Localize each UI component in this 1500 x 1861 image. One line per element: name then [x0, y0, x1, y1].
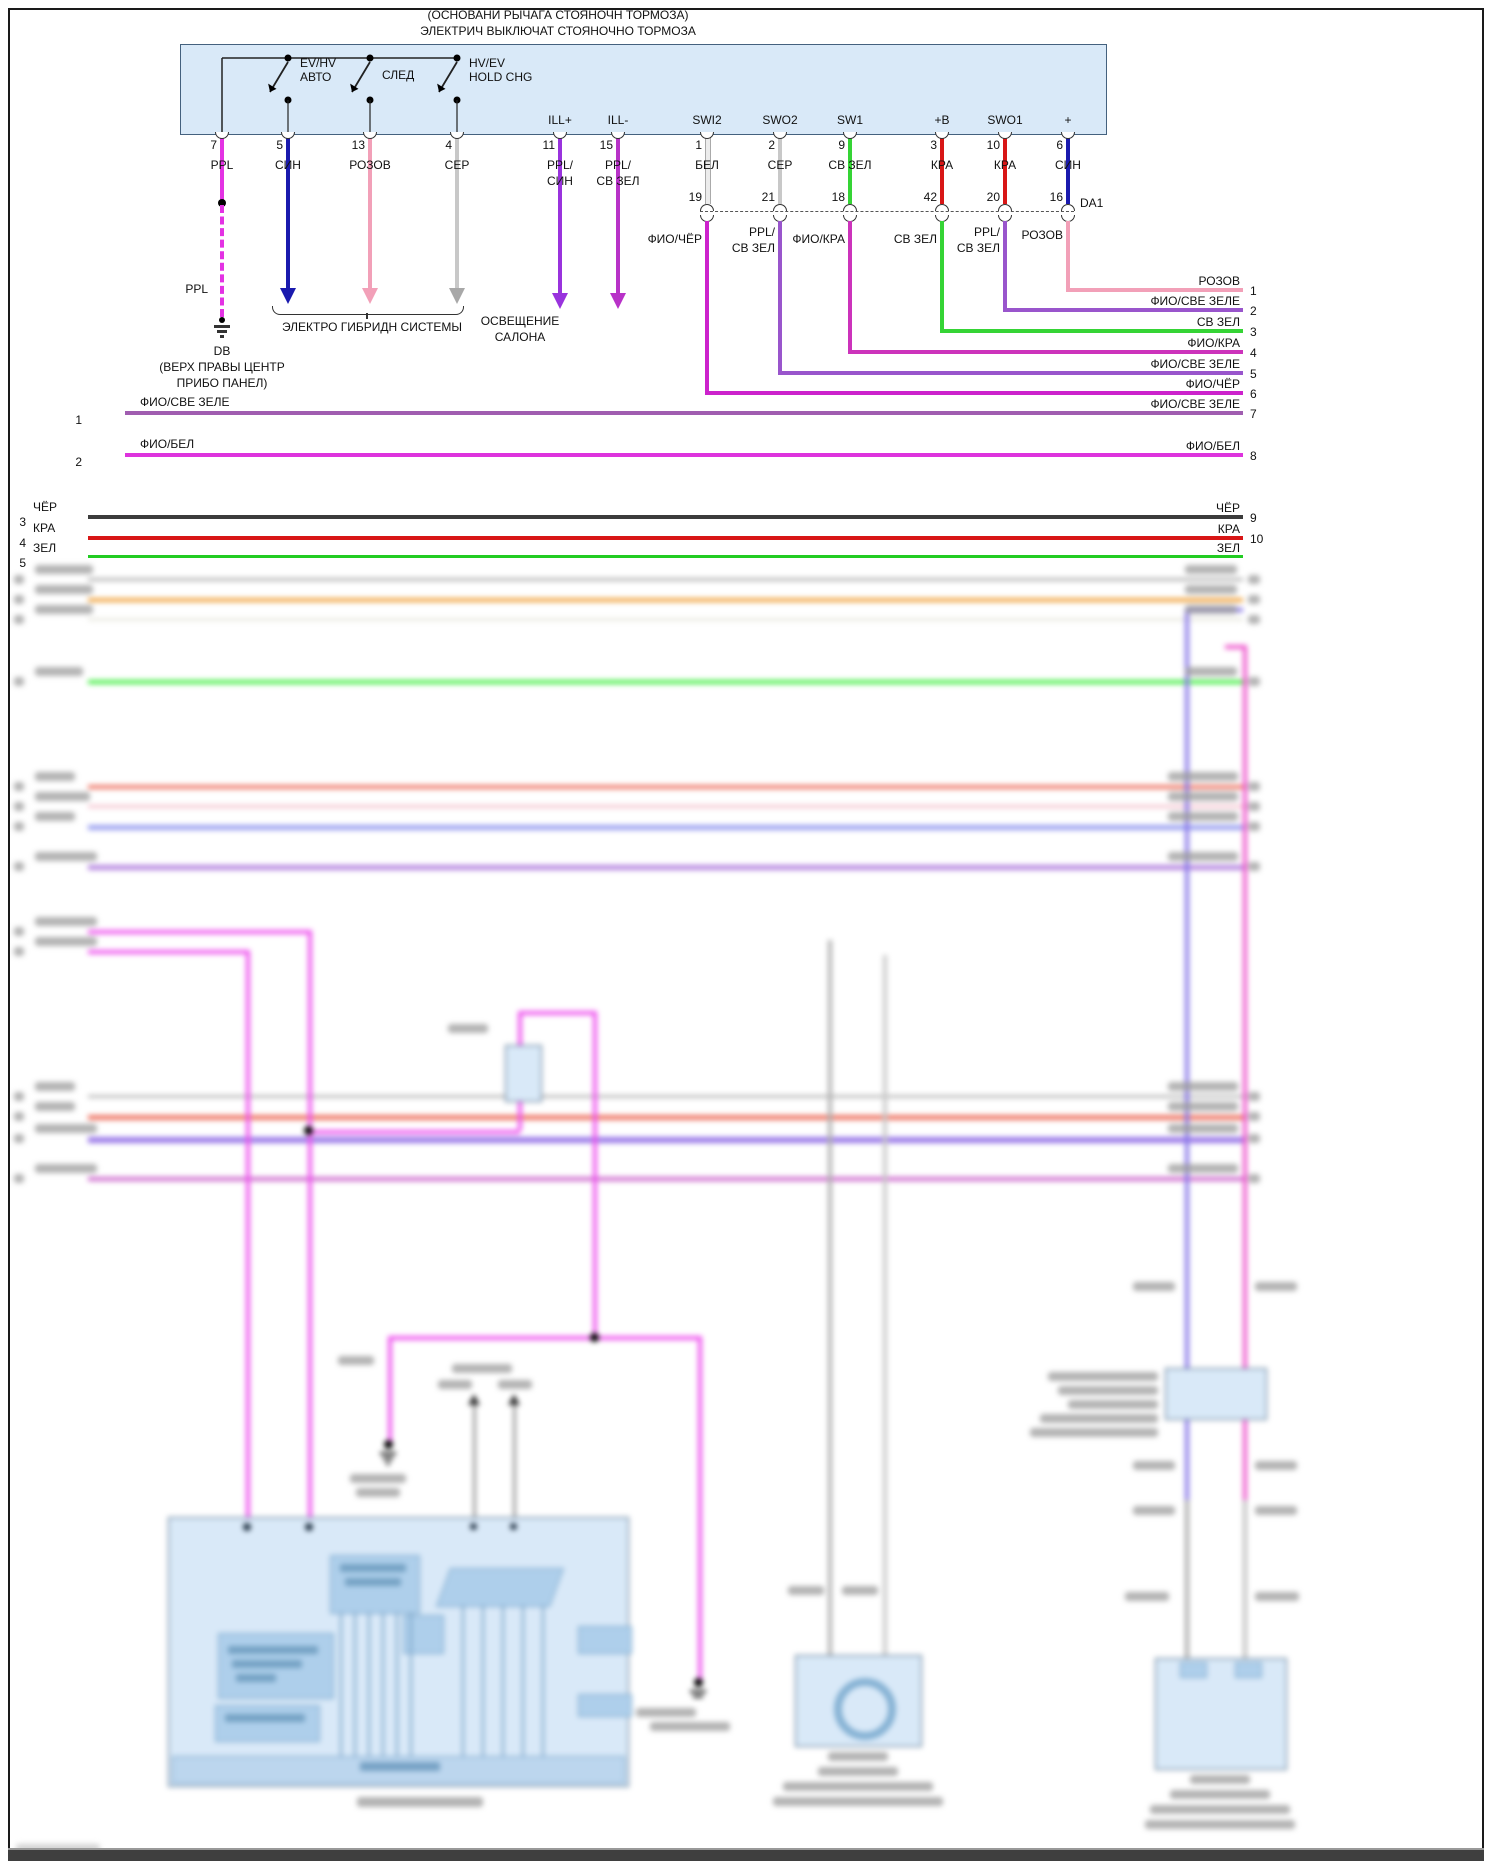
wire-kra: [88, 536, 1243, 540]
blurred-text: [1030, 1428, 1158, 1437]
blurred-text: [338, 1356, 374, 1365]
blurred-text: [1255, 1592, 1299, 1601]
wire-color-label: СИН: [275, 158, 301, 172]
blurred-wire: [88, 1095, 1243, 1098]
arrow-down: [449, 288, 465, 304]
row-number: 8: [1250, 449, 1257, 463]
blurred-wire: [88, 680, 1243, 684]
wire-color-label: ЗЕЛ: [33, 541, 56, 555]
connector-pin-number: 18: [832, 190, 845, 204]
blurred-wire: [388, 1336, 392, 1442]
blurred-text: [35, 1124, 97, 1133]
pin-number: 3: [930, 138, 937, 152]
cabin-light-label: САЛОНА: [495, 330, 546, 344]
blurred-text: [35, 585, 93, 594]
wire-color-label: СЕР: [768, 158, 793, 172]
brace: [272, 306, 464, 315]
blurred-text: [1058, 1386, 1158, 1395]
blurred-inner-line: [522, 1605, 524, 1756]
blurred-text: [1255, 1506, 1297, 1515]
wire-fio-kra: [848, 350, 1243, 354]
blurred-wire: [88, 825, 1243, 830]
pin-number: 2: [768, 138, 775, 152]
blurred-text: [14, 1134, 24, 1143]
blurred-text: [1068, 1400, 1158, 1409]
switch-label: HV/EV: [469, 56, 505, 70]
junction-dot: [304, 1126, 313, 1135]
blurred-caption: [818, 1767, 898, 1776]
wire-color-label: КРА: [931, 158, 953, 172]
blurred-text: [1048, 1372, 1158, 1381]
pin-number: 1: [695, 138, 702, 152]
ground-icon: [220, 335, 224, 338]
blurred-text: [1040, 1414, 1158, 1423]
wire-ppl-svzel: [616, 133, 620, 293]
blurred-text: [788, 1586, 824, 1595]
blurred-text: [35, 937, 97, 946]
ground-dot: [384, 1440, 393, 1449]
wire-color-label: ФИО/БЕЛ: [1186, 439, 1240, 453]
blurred-text: [452, 1364, 512, 1373]
blurred-lower-diagram: [0, 556, 1500, 1852]
arrow-down: [552, 293, 568, 309]
wire-ppl-svzel: [778, 371, 1243, 375]
wire-rozov: [1066, 221, 1070, 290]
blurred-inner-line: [542, 1605, 544, 1756]
connector-half: [843, 204, 857, 211]
ground-icon: [690, 1690, 706, 1693]
blurred-text: [842, 1586, 878, 1595]
connector-pin-number: 21: [762, 190, 775, 204]
wire-color-label: СВ ЗЕЛ: [1197, 315, 1240, 329]
blurred-text: [14, 822, 24, 831]
wire-color-label: СЕР: [445, 158, 470, 172]
blurred-text: [345, 1578, 401, 1586]
blurred-subbox: [215, 1705, 320, 1742]
blurred-text: [356, 1488, 400, 1497]
terminal-label: SW1: [837, 113, 863, 127]
blurred-caption: [636, 1708, 696, 1717]
blurred-text: [1248, 862, 1260, 871]
ground-icon: [386, 1462, 390, 1465]
blurred-caption: [783, 1782, 933, 1791]
blurred-text: [225, 1714, 305, 1722]
diagram-title-line1: (ОСНОВАНИ РЫЧАГА СТОЯНОЧН ТОРМОЗА): [428, 8, 689, 22]
row-number: 9: [1250, 511, 1257, 525]
junction-dot: [590, 1333, 599, 1342]
terminal-label: ILL-: [608, 113, 629, 127]
blurred-text: [1168, 1164, 1238, 1173]
wire-color-label: СВ ЗЕЛ: [894, 232, 937, 246]
junction-dot: [243, 1523, 251, 1531]
wire-sin: [286, 133, 290, 288]
wire-color-label: ЗЕЛ: [1217, 541, 1240, 555]
wiring-diagram-page: (ОСНОВАНИ РЫЧАГА СТОЯНОЧН ТОРМОЗА) ЭЛЕКТ…: [0, 0, 1500, 1861]
row-number: 3: [1250, 325, 1257, 339]
blurred-text: [1248, 1134, 1260, 1143]
blurred-text: [1168, 772, 1238, 781]
brace-tick: [366, 313, 368, 319]
connector-half: [1061, 204, 1075, 211]
wire-color-label: ЧЁР: [33, 500, 57, 514]
blurred-text: [35, 605, 93, 614]
wire-color-label: ФИО/КРА: [1187, 336, 1240, 350]
connector-half: [773, 204, 787, 211]
blurred-wire: [88, 1177, 1243, 1181]
wire-ser: [455, 133, 459, 288]
blurred-text: [14, 802, 24, 811]
blurred-text: [1168, 852, 1238, 861]
blurred-text: [14, 575, 24, 584]
row-number: 10: [1250, 532, 1263, 546]
blurred-caption: [1170, 1790, 1270, 1799]
blurred-text: [1133, 1282, 1175, 1291]
ground-icon: [217, 330, 227, 333]
wire-color-label: СИН: [547, 174, 573, 188]
blurred-wire: [1185, 1418, 1189, 1500]
blurred-component: [505, 1045, 542, 1102]
ground-icon: [693, 1695, 703, 1698]
blurred-text: [1248, 782, 1260, 791]
blurred-text: [1168, 1102, 1238, 1111]
blurred-text: [14, 927, 24, 936]
blurred-inner-line: [382, 1612, 384, 1756]
junction-dot: [305, 1523, 313, 1531]
blurred-text: [1255, 1282, 1297, 1291]
blurred-component: [1155, 1658, 1287, 1770]
blurred-text: [228, 1646, 318, 1654]
blurred-wire: [473, 1405, 476, 1517]
blurred-text: [1133, 1506, 1175, 1515]
row-number: 2: [1250, 304, 1257, 318]
wire-color-label: ФИО/БЕЛ: [140, 437, 194, 451]
ground-icon: [380, 1452, 396, 1455]
terminal-label: +: [1064, 113, 1071, 127]
blurred-text: [35, 565, 93, 574]
arrow-down: [280, 288, 296, 304]
row-number: 6: [1250, 387, 1257, 401]
blurred-tab: [1235, 1662, 1262, 1678]
wire-color-label: ФИО/ЧЁР: [1186, 377, 1240, 391]
wire-rozov: [1066, 288, 1243, 292]
cabin-light-label: ОСВЕЩЕНИЕ: [481, 314, 560, 328]
blurred-caption: [1150, 1805, 1290, 1814]
blurred-wire: [88, 578, 1243, 581]
blurred-text: [1255, 1461, 1297, 1470]
wire-color-label: СВ ЗЕЛ: [957, 241, 1000, 255]
wire-rozov: [368, 133, 372, 288]
bottom-bar: [8, 1848, 1484, 1861]
arrow-down: [362, 288, 378, 304]
blurred-wire: [1243, 1500, 1247, 1658]
row-number: 7: [1250, 407, 1257, 421]
blurred-text: [14, 1092, 24, 1101]
blurred-text: [350, 1474, 406, 1483]
wire-color-label: РОЗОВ: [1198, 274, 1240, 288]
wire-color-label: СВ ЗЕЛ: [596, 174, 639, 188]
wire-color-label: ФИО/СВЕ ЗЕЛЕ: [1150, 397, 1240, 411]
blurred-text: [1248, 595, 1260, 604]
ground-icon: [214, 325, 230, 328]
blurred-text: [360, 1762, 440, 1771]
blurred-text: [1248, 1174, 1260, 1183]
blurred-text: [14, 782, 24, 791]
blurred-text: [448, 1024, 488, 1033]
blurred-text: [232, 1660, 302, 1668]
blurred-wire: [518, 1013, 522, 1045]
wire-color-label: PPL/: [605, 158, 631, 172]
blurred-text: [1168, 1082, 1238, 1091]
blurred-text: [438, 1380, 472, 1389]
wire-color-label: ФИО/КРА: [792, 232, 845, 246]
wire-fio-chyor: [705, 221, 709, 393]
blurred-wire: [88, 785, 1243, 789]
blurred-tab: [1180, 1662, 1207, 1678]
wire-color-label: СВ ЗЕЛ: [828, 158, 871, 172]
blurred-caption: [650, 1722, 730, 1731]
switch-label: HOLD CHG: [469, 70, 532, 84]
blurred-wire: [88, 865, 1243, 870]
wire-fio-sve-zele: [125, 411, 1243, 415]
terminal-label: SWI2: [692, 113, 721, 127]
blurred-caption: [1145, 1820, 1295, 1829]
blurred-inner-line: [354, 1612, 356, 1756]
blurred-text: [14, 862, 24, 871]
blurred-text: [1248, 822, 1260, 831]
blurred-subbox: [436, 1568, 564, 1607]
wire-color-label: PPL/: [547, 158, 573, 172]
motor-ring-icon: [834, 1678, 896, 1740]
blurred-caption: [357, 1797, 483, 1807]
connector-pin-number: 16: [1050, 190, 1063, 204]
ground-location: (ВЕРХ ПРАВЫ ЦЕНТР: [159, 360, 284, 374]
blurred-text: [35, 1082, 75, 1091]
blurred-text: [35, 1102, 75, 1111]
wire-color-label: PPL/: [749, 225, 775, 239]
blurred-text: [35, 792, 90, 801]
blurred-wire: [390, 1336, 702, 1340]
pin-number: 5: [276, 138, 283, 152]
blurred-text: [35, 772, 75, 781]
blurred-wire: [88, 950, 248, 954]
terminal-label: +B: [934, 113, 949, 127]
blurred-inner-line: [340, 1612, 342, 1756]
blurred-wire: [1225, 645, 1243, 649]
wire-color-label: PPL: [185, 282, 208, 296]
wire-color-label: БЕЛ: [695, 158, 719, 172]
blurred-text: [340, 1564, 406, 1572]
terminal-label: SWO1: [987, 113, 1022, 127]
blurred-wire: [1243, 1418, 1247, 1500]
wire-chyor: [88, 515, 1243, 519]
pin-number: 13: [352, 138, 365, 152]
blurred-caption: [773, 1797, 943, 1806]
row-number: 5: [1250, 367, 1257, 381]
arrow-down: [610, 293, 626, 309]
blurred-text: [1248, 802, 1260, 811]
wire-color-label: СВ ЗЕЛ: [732, 241, 775, 255]
wire-color-label: КРА: [33, 521, 55, 535]
blurred-caption: [1190, 1775, 1250, 1784]
pin-number: 9: [838, 138, 845, 152]
pin-number: 15: [600, 138, 613, 152]
blurred-text: [236, 1674, 276, 1682]
blurred-wire: [88, 618, 1243, 621]
blurred-wire: [88, 1137, 1243, 1143]
connector-half: [935, 204, 949, 211]
blurred-text: [1168, 812, 1238, 821]
blurred-wire: [1185, 608, 1189, 1368]
pin-number: 11: [543, 138, 555, 152]
blurred-wire: [518, 1011, 597, 1015]
blurred-text: [1248, 615, 1260, 624]
blurred-text: [1125, 1592, 1169, 1601]
blurred-wire: [308, 930, 312, 1517]
blurred-inner-line: [396, 1612, 398, 1756]
wire-color-label: ФИО/СВЕ ЗЕЛЕ: [140, 395, 230, 409]
row-number: 1: [75, 413, 82, 427]
arrow-up: [468, 1394, 480, 1405]
blurred-wire: [88, 930, 310, 934]
wire-color-label: PPL: [211, 158, 234, 172]
pin-number: 10: [987, 138, 1000, 152]
blurred-wire: [88, 1115, 1243, 1120]
wire-color-label: ЧЁР: [1216, 501, 1240, 515]
pin-number: 7: [210, 138, 217, 152]
switch-label: АВТО: [300, 70, 331, 84]
blurred-text: [14, 595, 24, 604]
blurred-text: [1168, 1124, 1238, 1133]
ground-name: DB: [214, 344, 231, 358]
diagram-title-line2: ЭЛЕКТРИЧ ВЫКЛЮЧАТ СТОЯНОЧНО ТОРМОЗА: [420, 24, 696, 38]
switch-label: EV/HV: [300, 56, 336, 70]
blurred-wire: [1185, 1500, 1189, 1658]
wire-ppl-svzel: [1003, 308, 1243, 312]
pin-number: 4: [445, 138, 452, 152]
blurred-wire: [513, 1405, 516, 1517]
connector-pin-number: 42: [924, 190, 937, 204]
wire-svzel: [940, 221, 944, 331]
ground-dot: [694, 1678, 703, 1687]
blurred-text: [14, 947, 24, 956]
wire-ppl-svzel: [778, 221, 782, 373]
wire-color-label: РОЗОВ: [349, 158, 391, 172]
wire-fio-bel: [125, 453, 1243, 457]
blurred-text: [35, 667, 83, 676]
row-number: 4: [19, 536, 26, 550]
blurred-inner-line: [482, 1605, 484, 1756]
blurred-caption: [828, 1752, 888, 1761]
blurred-text: [1248, 677, 1260, 686]
blurred-text: [1185, 667, 1237, 676]
blurred-wire: [246, 950, 250, 1517]
blurred-text: [1133, 1461, 1175, 1470]
row-number: 2: [75, 455, 82, 469]
blurred-text: [35, 852, 97, 861]
blurred-text: [1168, 792, 1238, 801]
blurred-inner-line: [502, 1605, 504, 1756]
blurred-inner-line: [462, 1605, 464, 1756]
wire-color-label: ФИО/СВЕ ЗЕЛЕ: [1150, 294, 1240, 308]
blurred-text: [14, 615, 24, 624]
row-number: 1: [1250, 284, 1257, 298]
wire-svzel: [940, 329, 1243, 333]
wire-color-label: PPL/: [974, 225, 1000, 239]
blurred-text: [14, 677, 24, 686]
connector-half: [700, 204, 714, 211]
blurred-subbox: [578, 1626, 632, 1654]
wire-ppl-svzel: [1003, 221, 1007, 310]
blurred-wire: [1243, 645, 1247, 1368]
blurred-text: [14, 1174, 24, 1183]
terminal-label: SWO2: [762, 113, 797, 127]
blurred-wire: [88, 805, 1243, 808]
ground-icon: [383, 1457, 393, 1460]
connector-pin-number: 20: [987, 190, 1000, 204]
wire-color-label: СИН: [1055, 158, 1081, 172]
wire-color-label: КРА: [1218, 522, 1240, 536]
blurred-wire: [828, 940, 832, 1655]
blurred-inner-line: [410, 1612, 412, 1756]
blurred-text: [14, 1112, 24, 1121]
pin-number: 6: [1056, 138, 1063, 152]
junction-dot: [510, 1523, 517, 1530]
blurred-connector: [1165, 1368, 1267, 1420]
wire-ppl-sin: [558, 133, 562, 293]
blurred-wire: [698, 1336, 702, 1680]
wire-color-label: ФИО/СВЕ ЗЕЛЕ: [1150, 357, 1240, 371]
ground-dot: [219, 317, 225, 323]
switch-label: СЛЕД: [382, 68, 414, 82]
row-number: 3: [19, 515, 26, 529]
blurred-wire: [88, 598, 1243, 602]
blurred-text: [1248, 575, 1260, 584]
wire-fio-kra: [848, 221, 852, 352]
blurred-text: [1185, 605, 1237, 614]
wire-color-label: РОЗОВ: [1021, 228, 1063, 242]
blurred-text: [1248, 1112, 1260, 1121]
terminal-label: ILL+: [548, 113, 572, 127]
ground-location: ПРИБО ПАНЕЛ): [177, 376, 268, 390]
row-number: 4: [1250, 346, 1257, 360]
blurred-wire: [883, 955, 887, 1655]
wire-ppl-dashed: [220, 205, 224, 317]
connector-pin-number: 19: [689, 190, 702, 204]
inline-connector-dashed: [700, 211, 1074, 212]
wire-color-label: КРА: [994, 158, 1016, 172]
blurred-text: [35, 812, 75, 821]
blurred-wire: [593, 1013, 597, 1338]
blurred-text: [1248, 1092, 1260, 1101]
connector-name: DA1: [1080, 196, 1103, 210]
blurred-text: [498, 1380, 532, 1389]
blurred-text: [35, 1164, 97, 1173]
blurred-text: [35, 917, 97, 926]
wire-color-label: ФИО/ЧЁР: [648, 232, 702, 246]
blurred-text: [1185, 565, 1237, 574]
blurred-inner-line: [368, 1612, 370, 1756]
junction-dot: [470, 1523, 477, 1530]
blurred-subbox: [578, 1694, 632, 1717]
wire-fio-chyor: [705, 391, 1243, 395]
blurred-wire: [308, 1130, 520, 1134]
hybrid-system-label: ЭЛЕКТРО ГИБРИДН СИСТЕМЫ: [282, 320, 462, 334]
blurred-wire: [518, 1100, 522, 1130]
connector-half: [998, 204, 1012, 211]
arrow-up: [508, 1394, 520, 1405]
